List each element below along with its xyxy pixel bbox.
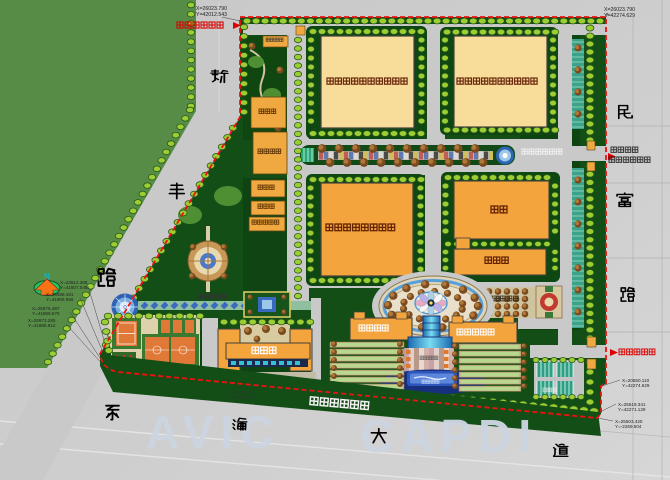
svg-text:Y=41885.812: Y=41885.812 — [28, 323, 56, 328]
svg-text:Y=-2269.504: Y=-2269.504 — [615, 424, 642, 429]
svg-text:Y=41807.045: Y=41807.045 — [60, 285, 88, 290]
svg-text:AVIC: AVIC — [146, 406, 281, 458]
svg-text:Y=41906.956: Y=41906.956 — [46, 297, 74, 302]
svg-text:N: N — [44, 272, 50, 281]
svg-text:Y=42274.629: Y=42274.629 — [604, 13, 635, 19]
svg-text:Y=42274.629: Y=42274.629 — [622, 383, 650, 388]
svg-text:Y=42271.129: Y=42271.129 — [618, 407, 646, 412]
svg-text:Y=12532.065: Y=12532.065 — [228, 395, 255, 400]
svg-text:CAPDI: CAPDI — [360, 410, 538, 462]
svg-text:Y=41899.570: Y=41899.570 — [32, 311, 60, 316]
